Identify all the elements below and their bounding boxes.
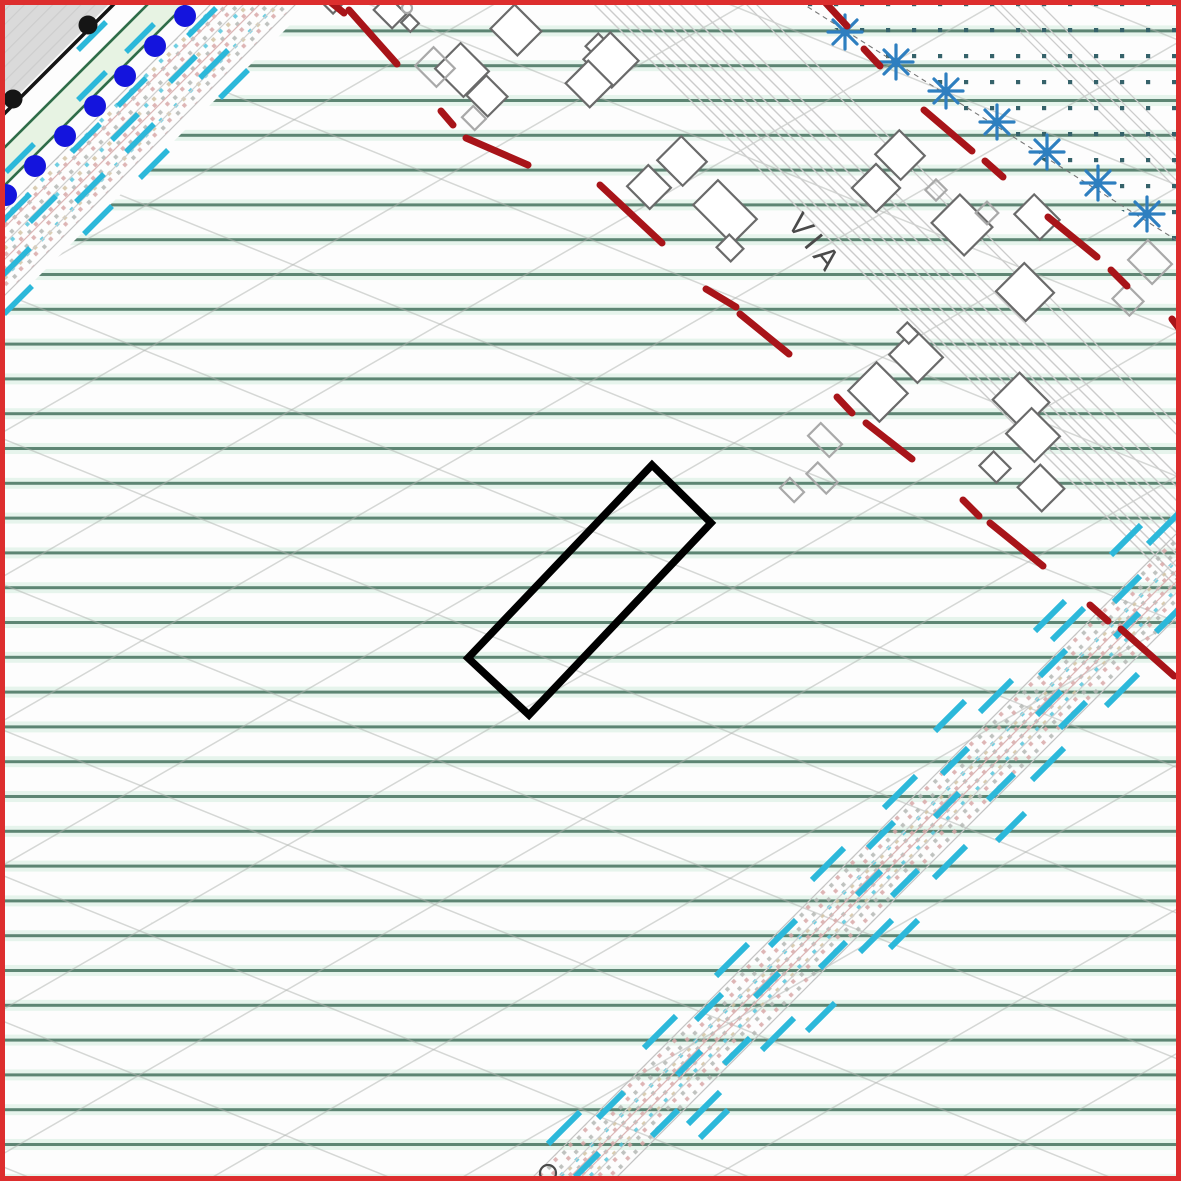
asterisk-symbol [980,105,1014,139]
zoning-map[interactable]: VIA [0,0,1181,1181]
asterisk-symbol [879,45,913,79]
blue-dot [114,65,136,87]
asterisk-symbol [1030,135,1064,169]
blue-dot [144,35,166,57]
black-line-dot [4,90,23,109]
asterisk-symbol [1130,197,1164,231]
blue-dot [24,155,46,177]
map-canvas[interactable]: VIA [0,0,1181,1181]
asterisk-center [993,118,1002,127]
asterisk-center [1143,210,1152,219]
asterisk-symbol [1081,166,1115,200]
asterisk-symbol [929,74,963,108]
asterisk-center [1094,179,1103,188]
asterisk-center [1043,148,1052,157]
blue-dot [174,5,196,27]
asterisk-center [892,58,901,67]
blue-dot [84,95,106,117]
black-line-dot [79,16,98,35]
asterisk-center [942,87,951,96]
blue-dot [54,125,76,147]
